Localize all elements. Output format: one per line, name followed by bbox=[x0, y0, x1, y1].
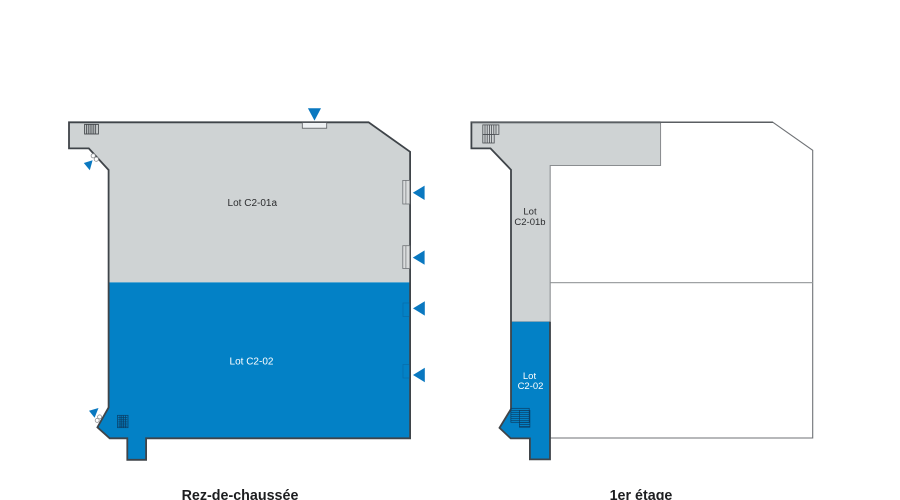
svg-text:Rez-de-chaussée: Rez-de-chaussée bbox=[182, 488, 299, 500]
svg-text:Lot C2-01a: Lot C2-01a bbox=[228, 198, 278, 209]
svg-text:Lot C2-02: Lot C2-02 bbox=[230, 357, 274, 368]
svg-text:C2-01b: C2-01b bbox=[514, 217, 545, 228]
svg-text:C2-02: C2-02 bbox=[518, 381, 544, 392]
svg-text:1er étage: 1er étage bbox=[610, 488, 673, 500]
